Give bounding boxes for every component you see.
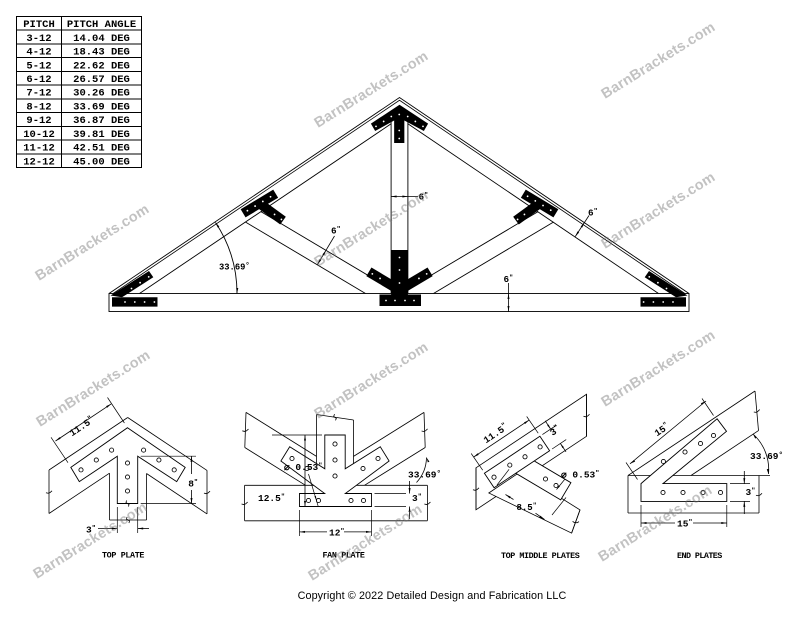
svg-text:39.81 DEG: 39.81 DEG [73,129,130,141]
svg-text:⌀ 0.53″: ⌀ 0.53″ [284,462,322,473]
svg-text:33.69 DEG: 33.69 DEG [73,101,130,113]
svg-text:Copyright © 2022 Detailed Desi: Copyright © 2022 Detailed Design and Fab… [298,590,567,602]
svg-text:22.62 DEG: 22.62 DEG [73,60,130,72]
svg-text:14.04 DEG: 14.04 DEG [73,33,130,45]
svg-text:8-12: 8-12 [26,101,51,113]
svg-text:18.43 DEG: 18.43 DEG [73,47,130,59]
svg-text:3-12: 3-12 [26,33,51,45]
svg-text:45.00 DEG: 45.00 DEG [73,156,130,168]
svg-text:10-12: 10-12 [23,129,55,141]
svg-text:30.26 DEG: 30.26 DEG [73,88,130,100]
svg-text:TOP PLATE: TOP PLATE [102,551,144,561]
svg-text:33.69°: 33.69° [750,451,783,462]
svg-text:7-12: 7-12 [26,88,51,100]
svg-text:12-12: 12-12 [23,156,55,168]
svg-text:6-12: 6-12 [26,74,51,86]
svg-text:END PLATES: END PLATES [677,551,722,561]
svg-text:PITCH: PITCH [23,19,55,31]
svg-text:11-12: 11-12 [23,143,55,155]
svg-text:33.69°: 33.69° [408,469,441,480]
svg-text:4-12: 4-12 [26,47,51,59]
svg-text:33.69°: 33.69° [219,261,250,272]
svg-text:⌀ 0.53″: ⌀ 0.53″ [561,469,599,480]
svg-text:36.87 DEG: 36.87 DEG [73,115,130,127]
svg-text:42.51 DEG: 42.51 DEG [73,143,130,155]
svg-text:9-12: 9-12 [26,115,51,127]
svg-text:26.57 DEG: 26.57 DEG [73,74,130,86]
svg-text:TOP MIDDLE PLATES: TOP MIDDLE PLATES [501,551,580,561]
svg-text:PITCH ANGLE: PITCH ANGLE [67,19,136,31]
svg-text:5-12: 5-12 [26,60,51,72]
